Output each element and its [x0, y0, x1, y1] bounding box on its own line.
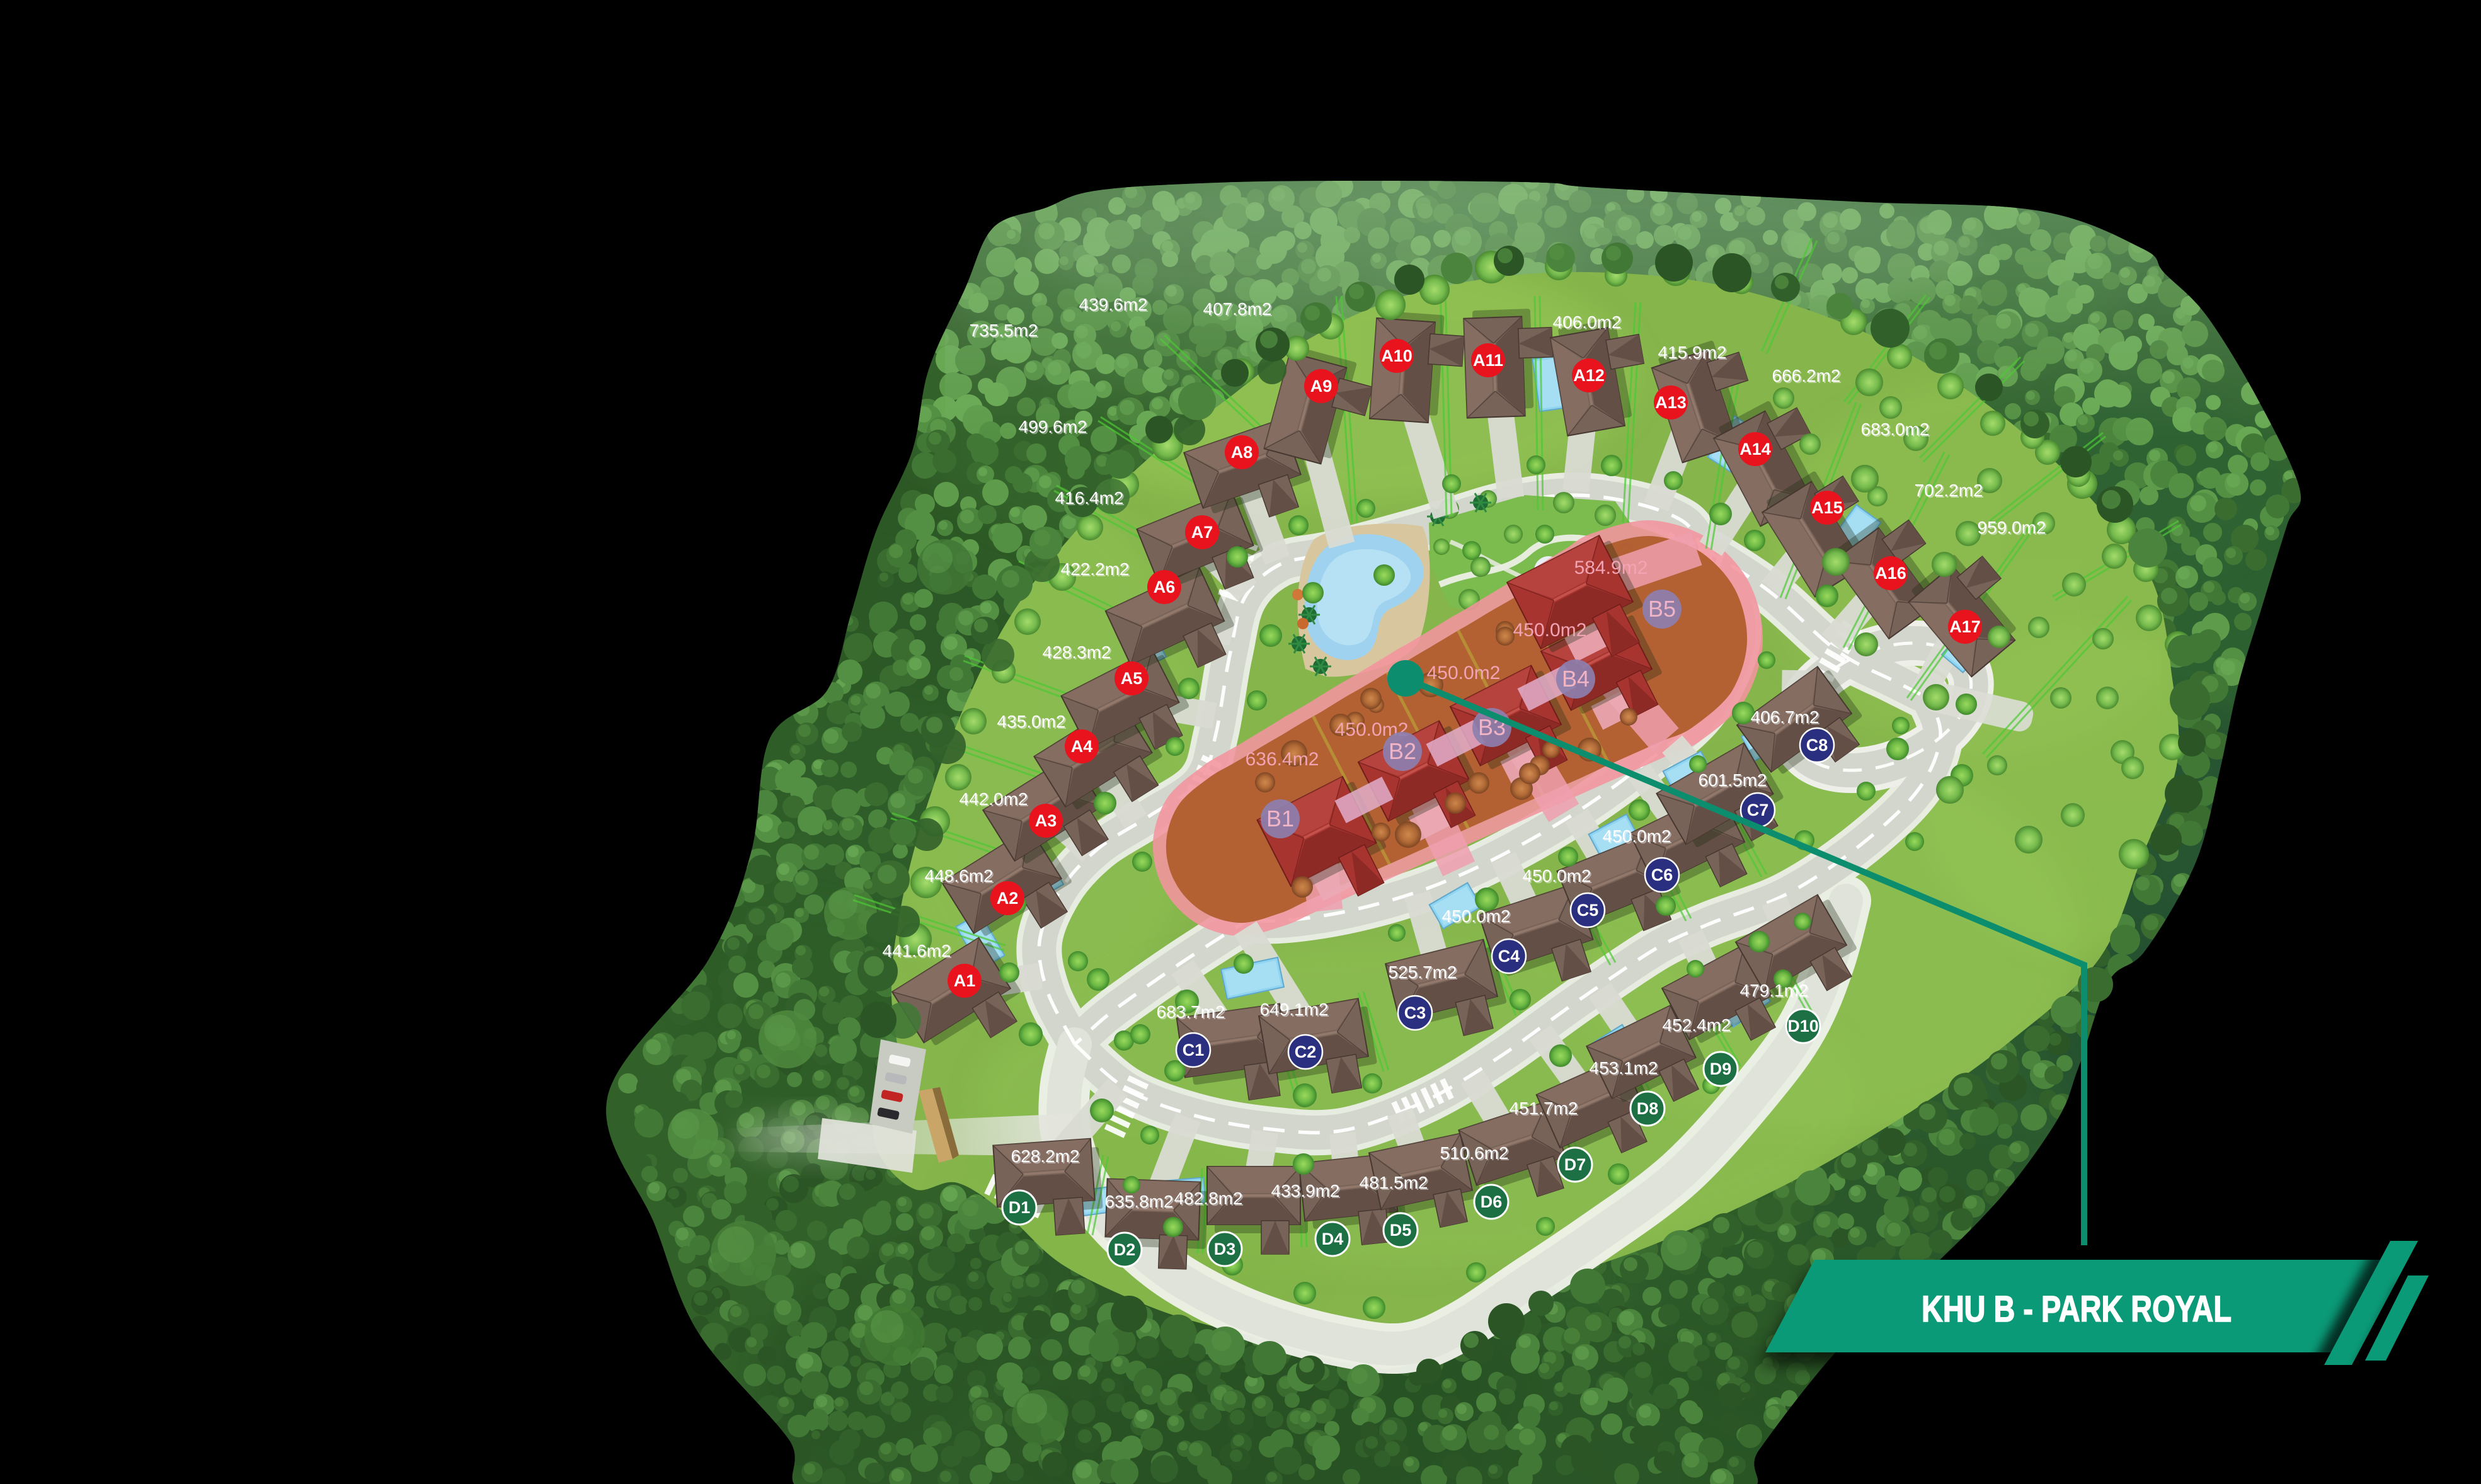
svg-text:A2: A2 [997, 889, 1019, 908]
svg-text:601.5m2: 601.5m2 [1699, 770, 1767, 790]
svg-text:D10: D10 [1787, 1017, 1819, 1036]
svg-text:A3: A3 [1035, 811, 1057, 830]
svg-text:450.0m2: 450.0m2 [1442, 906, 1511, 926]
svg-text:450.0m2: 450.0m2 [1427, 663, 1501, 683]
svg-text:422.2m2: 422.2m2 [1061, 559, 1130, 579]
svg-text:D6: D6 [1481, 1192, 1503, 1211]
svg-text:A1: A1 [954, 971, 976, 990]
svg-text:428.3m2: 428.3m2 [1043, 642, 1111, 662]
svg-text:B4: B4 [1562, 666, 1590, 692]
svg-text:584.9m2: 584.9m2 [1574, 557, 1648, 578]
svg-text:A16: A16 [1875, 564, 1906, 583]
svg-text:416.4m2: 416.4m2 [1055, 488, 1124, 508]
svg-text:A12: A12 [1573, 366, 1605, 385]
svg-text:B2: B2 [1389, 738, 1416, 764]
svg-text:D1: D1 [1009, 1198, 1031, 1217]
svg-text:C5: C5 [1577, 901, 1599, 920]
svg-text:A9: A9 [1310, 377, 1332, 396]
svg-text:433.9m2: 433.9m2 [1271, 1181, 1340, 1201]
svg-text:C3: C3 [1404, 1003, 1426, 1022]
svg-text:C4: C4 [1498, 947, 1520, 966]
svg-text:A15: A15 [1811, 498, 1843, 517]
svg-text:C7: C7 [1747, 801, 1769, 819]
svg-text:628.2m2: 628.2m2 [1011, 1146, 1080, 1166]
svg-text:D4: D4 [1322, 1230, 1344, 1248]
svg-text:683.7m2: 683.7m2 [1157, 1002, 1225, 1022]
svg-text:KHU B - PARK ROYAL: KHU B - PARK ROYAL [1922, 1289, 2232, 1330]
svg-text:406.7m2: 406.7m2 [1751, 707, 1819, 727]
svg-text:959.0m2: 959.0m2 [1978, 518, 2046, 537]
svg-text:C6: C6 [1651, 865, 1673, 884]
svg-text:450.0m2: 450.0m2 [1513, 620, 1587, 641]
svg-text:448.6m2: 448.6m2 [925, 866, 994, 886]
svg-text:452.4m2: 452.4m2 [1663, 1015, 1731, 1035]
svg-text:481.5m2: 481.5m2 [1360, 1173, 1428, 1192]
svg-text:A11: A11 [1473, 351, 1503, 370]
svg-text:649.1m2: 649.1m2 [1260, 1000, 1329, 1019]
svg-text:636.4m2: 636.4m2 [1246, 749, 1319, 770]
svg-text:407.8m2: 407.8m2 [1203, 299, 1272, 319]
svg-text:435.0m2: 435.0m2 [997, 712, 1066, 731]
svg-text:450.0m2: 450.0m2 [1603, 826, 1671, 846]
svg-text:A14: A14 [1739, 440, 1771, 459]
svg-text:D8: D8 [1637, 1099, 1659, 1118]
svg-text:441.6m2: 441.6m2 [883, 941, 951, 961]
svg-text:453.1m2: 453.1m2 [1590, 1058, 1658, 1078]
svg-text:683.0m2: 683.0m2 [1861, 420, 1930, 439]
svg-text:A4: A4 [1071, 737, 1093, 756]
svg-text:A8: A8 [1231, 443, 1253, 462]
svg-text:525.7m2: 525.7m2 [1389, 962, 1457, 982]
svg-text:A7: A7 [1191, 523, 1213, 542]
svg-text:451.7m2: 451.7m2 [1510, 1099, 1578, 1118]
svg-text:B5: B5 [1648, 596, 1676, 622]
svg-text:415.9m2: 415.9m2 [1658, 343, 1727, 362]
svg-text:C2: C2 [1295, 1042, 1317, 1061]
svg-text:C1: C1 [1183, 1041, 1205, 1059]
svg-text:702.2m2: 702.2m2 [1915, 481, 1983, 500]
svg-text:479.1m2: 479.1m2 [1740, 981, 1809, 1000]
svg-text:510.6m2: 510.6m2 [1440, 1143, 1509, 1163]
svg-text:666.2m2: 666.2m2 [1772, 366, 1841, 385]
svg-text:C8: C8 [1806, 736, 1828, 755]
svg-text:A13: A13 [1655, 393, 1687, 412]
svg-text:D2: D2 [1114, 1240, 1136, 1259]
svg-text:482.8m2: 482.8m2 [1174, 1189, 1243, 1208]
svg-text:450.0m2: 450.0m2 [1523, 866, 1591, 886]
svg-text:635.8m2: 635.8m2 [1105, 1192, 1174, 1211]
svg-text:D7: D7 [1564, 1155, 1586, 1174]
svg-text:735.5m2: 735.5m2 [970, 321, 1038, 340]
svg-text:B1: B1 [1266, 806, 1294, 831]
svg-text:499.6m2: 499.6m2 [1019, 417, 1087, 437]
svg-text:A10: A10 [1381, 346, 1412, 365]
svg-text:406.0m2: 406.0m2 [1553, 312, 1622, 332]
svg-text:A17: A17 [1949, 617, 1981, 636]
svg-text:A5: A5 [1121, 669, 1143, 688]
svg-text:D3: D3 [1214, 1240, 1236, 1259]
svg-text:D5: D5 [1390, 1221, 1412, 1240]
svg-text:D9: D9 [1710, 1059, 1732, 1078]
svg-text:439.6m2: 439.6m2 [1079, 295, 1148, 314]
svg-text:A6: A6 [1154, 578, 1176, 596]
svg-text:442.0m2: 442.0m2 [960, 789, 1028, 809]
